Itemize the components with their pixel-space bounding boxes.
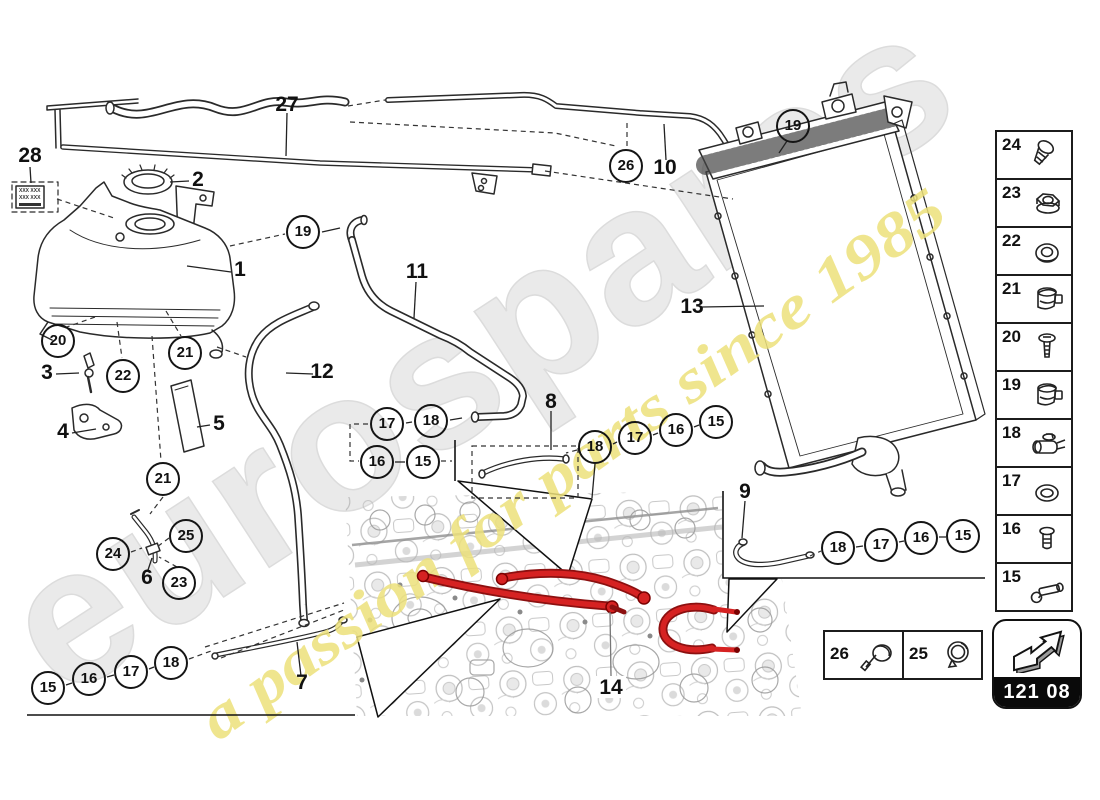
sticker-text-line2: XXX XXX <box>19 195 41 201</box>
sidebar-part-18[interactable]: 18 <box>995 418 1073 468</box>
part-label-8[interactable]: 8 <box>545 390 557 414</box>
page-code: 121 08 <box>994 677 1080 707</box>
sensor-3 <box>84 353 94 392</box>
part-number: 21 <box>1002 279 1021 299</box>
part-label-13[interactable]: 13 <box>680 295 703 319</box>
arrow-icon <box>1002 627 1072 673</box>
callout-circle-21b[interactable]: 21 <box>146 462 180 496</box>
clamp-screw-icon <box>854 637 900 677</box>
part-label-11[interactable]: 11 <box>406 260 428 284</box>
callout-circle-22[interactable]: 22 <box>106 359 140 393</box>
parts-diagram-page: eurospares <box>0 0 1100 800</box>
part-number: 26 <box>830 644 849 664</box>
callout-circle-17d[interactable]: 17 <box>114 655 148 689</box>
hose-clamp-icon <box>1025 377 1069 417</box>
tube-9 <box>736 539 814 565</box>
callout-circle-18b[interactable]: 18 <box>578 430 612 464</box>
callout-circle-18a[interactable]: 18 <box>414 404 448 438</box>
part-number: 15 <box>1002 567 1021 587</box>
page-code-badge[interactable]: 121 08 <box>992 619 1082 709</box>
ring-clamp-icon <box>933 637 979 677</box>
part-number: 20 <box>1002 327 1021 347</box>
bracket-4 <box>72 404 121 439</box>
callout-circle-15b[interactable]: 15 <box>699 405 733 439</box>
part-label-4[interactable]: 4 <box>57 420 69 444</box>
sidebar-part-22[interactable]: 22 <box>995 226 1073 276</box>
callout-circle-16a[interactable]: 16 <box>360 445 394 479</box>
part-label-27[interactable]: 27 <box>275 93 298 117</box>
part-label-12[interactable]: 12 <box>310 360 333 384</box>
callout-circle-25[interactable]: 25 <box>169 519 203 553</box>
sidebar-part-19[interactable]: 19 <box>995 370 1073 420</box>
part-label-5[interactable]: 5 <box>213 412 225 436</box>
part-number: 25 <box>909 644 928 664</box>
callout-circle-17c[interactable]: 17 <box>864 528 898 562</box>
hose-clamp-icon <box>1025 281 1069 321</box>
part-number: 22 <box>1002 231 1021 251</box>
callout-circle-15d[interactable]: 15 <box>31 671 65 705</box>
callout-circle-26[interactable]: 26 <box>609 149 643 183</box>
part-label-3[interactable]: 3 <box>41 361 53 385</box>
callout-circle-16d[interactable]: 16 <box>72 662 106 696</box>
sidebar-part-16[interactable]: 16 <box>995 514 1073 564</box>
sidebar-part-20[interactable]: 20 <box>995 322 1073 372</box>
part-number: 17 <box>1002 471 1021 491</box>
part-number: 16 <box>1002 519 1021 539</box>
part-label-9[interactable]: 9 <box>739 480 751 504</box>
part-label-1[interactable]: 1 <box>234 258 246 282</box>
callout-circle-18c[interactable]: 18 <box>821 531 855 565</box>
callout-circle-19b[interactable]: 19 <box>776 109 810 143</box>
callout-circle-17a[interactable]: 17 <box>370 407 404 441</box>
callout-circle-21a[interactable]: 21 <box>168 336 202 370</box>
callout-circle-18d[interactable]: 18 <box>154 646 188 680</box>
washer-icon <box>1025 473 1069 513</box>
part-label-10[interactable]: 10 <box>653 156 676 180</box>
part-label-28[interactable]: 28 <box>18 144 41 168</box>
callout-circle-24[interactable]: 24 <box>96 537 130 571</box>
part-label-6[interactable]: 6 <box>141 566 153 590</box>
sidebar-part-23[interactable]: 23 <box>995 178 1073 228</box>
callout-circle-15a[interactable]: 15 <box>406 445 440 479</box>
legend-part-26[interactable]: 26 <box>823 630 904 680</box>
flange-nut-icon <box>1025 185 1069 225</box>
callout-circle-17b[interactable]: 17 <box>618 421 652 455</box>
sidebar-part-21[interactable]: 21 <box>995 274 1073 324</box>
screw-icon <box>1025 137 1069 177</box>
part-label-14[interactable]: 14 <box>599 676 622 700</box>
part-number: 24 <box>1002 135 1021 155</box>
callout-circle-16c[interactable]: 16 <box>904 521 938 555</box>
part-label-2[interactable]: 2 <box>192 168 204 192</box>
grommet-icon <box>1025 233 1069 273</box>
callout-circle-19[interactable]: 19 <box>286 215 320 249</box>
part-number: 23 <box>1002 183 1021 203</box>
bolt-icon <box>1025 521 1069 561</box>
callout-circle-16b[interactable]: 16 <box>659 413 693 447</box>
callout-circle-23[interactable]: 23 <box>162 566 196 600</box>
part-number: 19 <box>1002 375 1021 395</box>
sticker-text-line1: XXX XXX <box>19 188 41 194</box>
sidebar-part-15[interactable]: 15 <box>995 562 1073 612</box>
part-number: 18 <box>1002 423 1021 443</box>
sidebar-part-24[interactable]: 24 <box>995 130 1073 180</box>
clip-holder-icon <box>1025 425 1069 465</box>
sensor-bolt-icon <box>1025 569 1069 609</box>
legend-part-25[interactable]: 25 <box>902 630 983 680</box>
callout-circle-15c[interactable]: 15 <box>946 519 980 553</box>
callout-circle-20[interactable]: 20 <box>41 324 75 358</box>
pan-screw-icon <box>1025 329 1069 369</box>
sidebar-part-17[interactable]: 17 <box>995 466 1073 516</box>
part-label-7[interactable]: 7 <box>296 671 308 695</box>
upper-coolant-hose <box>106 100 345 114</box>
